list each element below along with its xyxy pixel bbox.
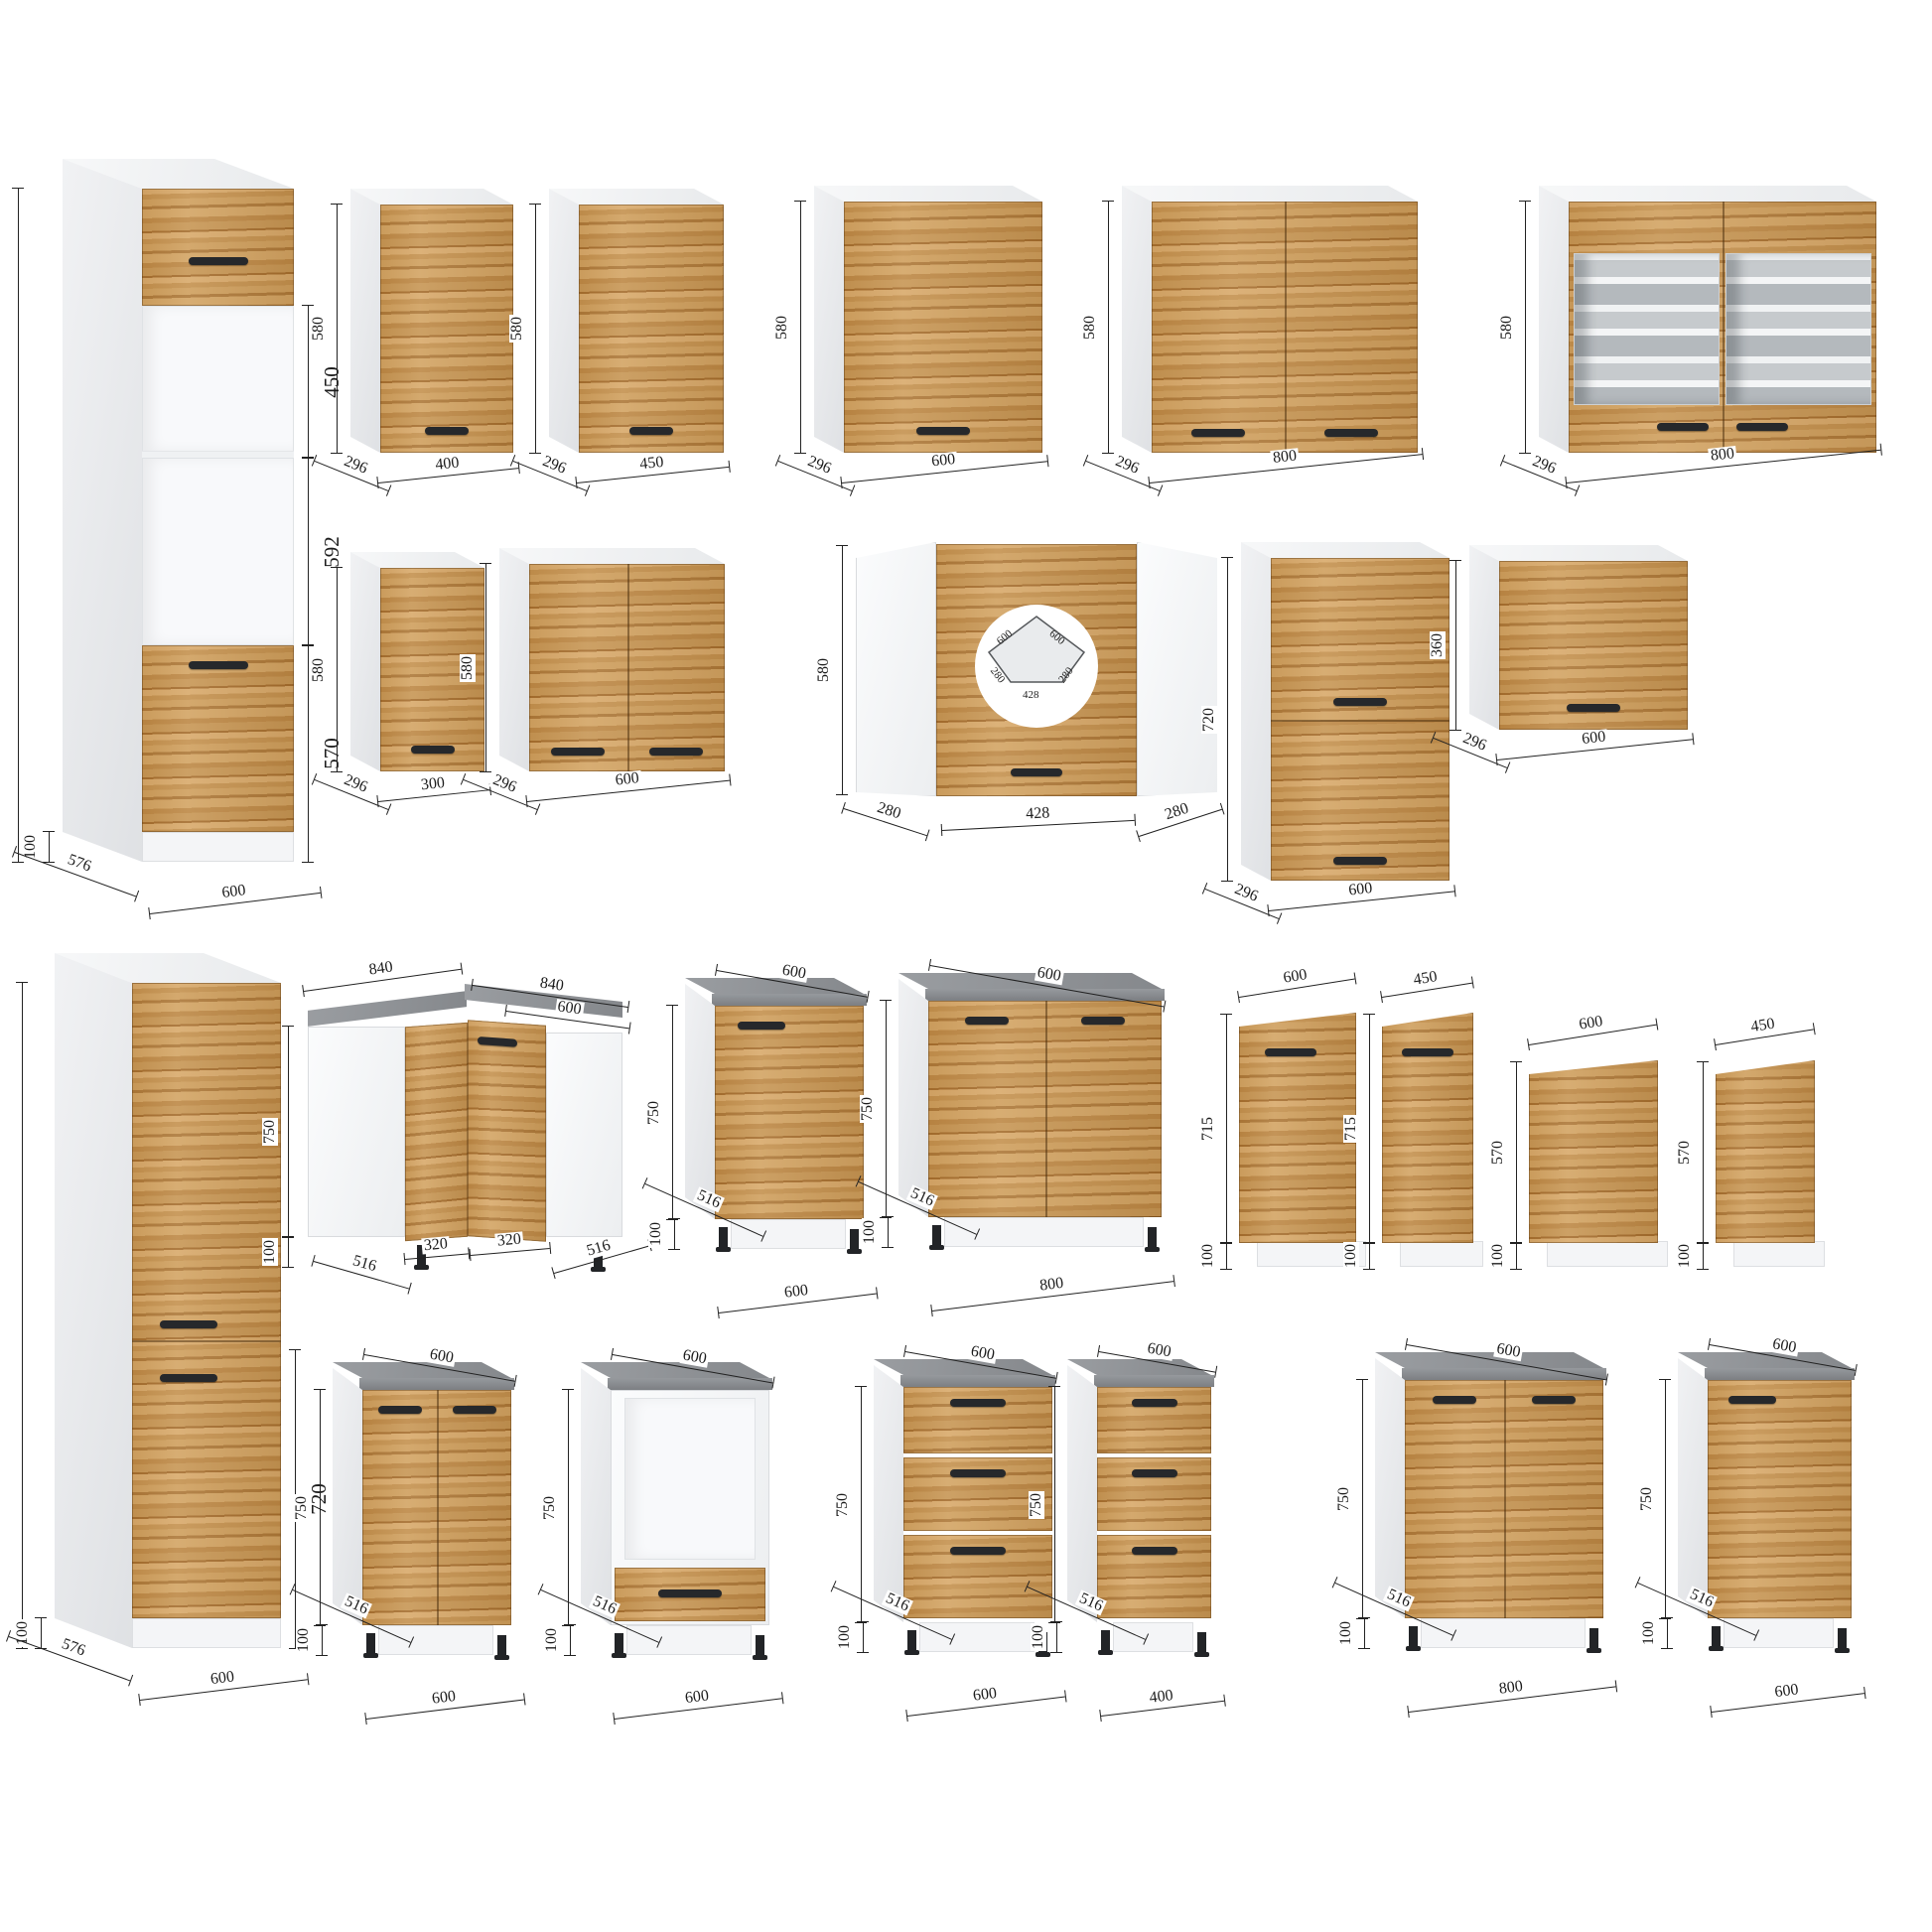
cabinet-side-face: [350, 189, 380, 453]
corner-door-left: [405, 1023, 468, 1241]
cabinet-leg: [932, 1225, 941, 1245]
door-handle: [189, 661, 248, 669]
door-handle: [1191, 429, 1245, 437]
corner-left-wing: [856, 542, 936, 796]
dim-height: 580: [842, 546, 843, 794]
dim-plinth: 100: [1369, 1243, 1370, 1269]
door-handle: [1728, 1396, 1776, 1404]
dim-width: 600: [1239, 979, 1355, 998]
door-handle: [629, 427, 673, 435]
door-split-line: [1285, 202, 1287, 453]
dim-label-width: 600: [970, 1686, 1000, 1705]
dim-height: 360: [1455, 561, 1456, 730]
panel-front: [1239, 1013, 1356, 1243]
dim-label-depth: 296: [340, 771, 371, 796]
cabinet-leg: [1409, 1626, 1418, 1646]
countertop-edge: [925, 989, 1165, 1001]
plinth-panel: [731, 1219, 846, 1249]
dim-label-width: 800: [1708, 446, 1737, 465]
dim-height: 715: [1226, 1015, 1227, 1243]
dim-height: 580: [337, 568, 338, 771]
door-handle: [1567, 704, 1620, 712]
dim-label-door_lower: 570: [321, 736, 342, 771]
cabinet-leg: [850, 1229, 859, 1249]
dim-label-width: 600: [1576, 1014, 1605, 1034]
dim-label-width: 600: [1580, 729, 1609, 748]
dim-label-height: 570: [1677, 1139, 1693, 1167]
plinth-panel: [1724, 1618, 1834, 1648]
dim-label-width: 600: [207, 1669, 237, 1688]
dim-label-height: 750: [1029, 1491, 1044, 1519]
cabinet-front: [928, 1001, 1162, 1217]
dim-total_height: 1940: [18, 189, 19, 862]
cabinet-top-face: [814, 186, 1042, 202]
cabinet-side-face: [685, 978, 715, 1219]
dim-label-top_width: 600: [1144, 1340, 1173, 1361]
oven-drawer-front: [615, 1568, 765, 1621]
dim-label-plinth: 100: [1343, 1242, 1359, 1270]
dim-label-left: 280: [873, 799, 904, 823]
countertop-edge: [1705, 1368, 1855, 1380]
door-handle: [478, 1036, 517, 1047]
dim-label-width: 300: [418, 775, 448, 794]
dim-label-height: 750: [860, 1095, 876, 1123]
dim-label-width: 400: [433, 455, 463, 474]
dim-label-height: 580: [460, 654, 476, 682]
door-handle: [378, 1406, 422, 1414]
dim-label-width: 600: [613, 770, 642, 789]
cabinet-top-face: [1122, 186, 1418, 202]
cabinet-front: [362, 1390, 511, 1625]
cabinet-top-face: [499, 548, 725, 564]
door-handle: [950, 1469, 1006, 1477]
dim-height: 750: [1665, 1380, 1666, 1618]
dim-label-height: 750: [1639, 1485, 1655, 1513]
cabinet-front: [715, 1006, 864, 1219]
dim-width: 600: [1529, 1025, 1657, 1045]
dim-label-plinth: 100: [1200, 1242, 1216, 1270]
dim-label-depth: 296: [803, 453, 835, 478]
door-handle: [1265, 1048, 1316, 1056]
cabinet-side-face: [1241, 542, 1271, 881]
door-split-line: [1723, 202, 1725, 453]
cabinet-top-face: [549, 189, 724, 205]
dim-plinth: 100: [1516, 1243, 1517, 1269]
dim-label-height: 715: [1343, 1115, 1359, 1143]
dim-height: 750: [886, 1001, 887, 1217]
cabinet-side-face: [581, 1362, 611, 1625]
oven-bottom-door: [142, 645, 294, 832]
dim-bottom_inner_left: 320: [405, 1253, 469, 1260]
dim-plinth: 100: [863, 1622, 864, 1652]
dim-height: 580: [535, 205, 536, 453]
dim-label-width: 800: [1496, 1679, 1526, 1698]
dim-plinth: 100: [322, 1625, 323, 1655]
dim-label-width: 800: [1270, 448, 1300, 467]
corner-right-panel: [546, 1033, 622, 1237]
cabinet-leg: [1589, 1628, 1598, 1648]
dim-total_height: 1940: [22, 983, 23, 1648]
door-handle: [160, 1320, 217, 1328]
dim-label-width: 400: [1147, 1688, 1176, 1707]
door-handle: [1132, 1399, 1177, 1407]
dim-label-plinth: 100: [837, 1623, 853, 1651]
dim-label-width: 600: [682, 1688, 712, 1707]
dim-width: 400: [378, 468, 518, 483]
dim-door_lower: 570: [308, 645, 309, 862]
door-handle: [1736, 423, 1788, 431]
dim-width: 600: [842, 461, 1047, 483]
dim-label-depth: 296: [1230, 881, 1262, 905]
door-split-line: [1045, 1001, 1047, 1217]
dim-label-depth: 296: [538, 453, 570, 478]
dim-center: 428: [942, 820, 1135, 831]
dim-label-width: 800: [1036, 1276, 1066, 1295]
plinth-panel: [1547, 1241, 1668, 1267]
countertop-edge: [712, 994, 867, 1006]
door-handle: [1132, 1469, 1177, 1477]
dim-label-depth: 296: [488, 771, 520, 796]
cabinet-side-face: [814, 186, 844, 453]
dim-label-height: 580: [774, 314, 790, 342]
corner-plan-inset: 600600280280428: [975, 605, 1098, 728]
dim-height: 750: [861, 1387, 862, 1622]
drawer-front: [903, 1387, 1052, 1453]
dim-label-plinth: 100: [862, 1218, 878, 1246]
plinth-panel: [919, 1622, 1035, 1652]
cabinet-side-face: [350, 552, 380, 771]
dim-label-height: 570: [1490, 1139, 1506, 1167]
dim-label-height: 580: [509, 315, 525, 343]
cabinet-front: [529, 564, 725, 771]
cabinet-front: [132, 983, 281, 1618]
door-handle: [950, 1547, 1006, 1555]
dim-width: 400: [1101, 1701, 1224, 1717]
dim-label-bottom_left: 516: [348, 1253, 379, 1276]
door-handle: [1333, 857, 1387, 865]
cabinet-front: [1499, 561, 1688, 730]
dim-label-depth: 296: [340, 453, 371, 478]
dim-label-height: 715: [1200, 1115, 1216, 1143]
dim-label-width: 600: [219, 883, 249, 901]
dim-label-top_left: 840: [366, 959, 396, 979]
cabinet-leg: [1838, 1628, 1847, 1648]
countertop-edge: [359, 1378, 514, 1390]
oven-cavity: [624, 1398, 756, 1560]
dim-width: 600: [1712, 1693, 1864, 1713]
drawer-front: [1097, 1535, 1211, 1618]
oven-top-drawer-front: [142, 189, 294, 306]
dim-label-depth: 576: [58, 1636, 89, 1661]
door-handle: [1011, 768, 1062, 776]
door-split-line: [1271, 720, 1449, 722]
dim-width: 300: [378, 789, 489, 802]
door-handle: [1324, 429, 1378, 437]
dim-plinth: 100: [1056, 1622, 1057, 1652]
cabinet-side-face: [874, 1359, 903, 1622]
cabinet-side-face: [549, 189, 579, 453]
dim-plinth: 100: [288, 1237, 289, 1267]
dim-label-width: 600: [1346, 881, 1376, 899]
dim-height: 720: [1227, 558, 1228, 881]
dim-plinth: 100: [674, 1219, 675, 1249]
door-split-line: [627, 564, 629, 771]
door-handle: [1657, 423, 1709, 431]
corner-right-wing: [1137, 542, 1218, 796]
cabinet-side-face: [1539, 186, 1569, 453]
door-handle: [1081, 1017, 1125, 1025]
countertop-top: [1375, 1352, 1603, 1368]
door-handle: [738, 1022, 785, 1030]
dim-height: 750: [568, 1390, 569, 1625]
cabinet-leg: [1101, 1630, 1110, 1650]
cabinet-front: [1708, 1380, 1852, 1618]
dim-width: 600: [1269, 891, 1454, 911]
dim-label-plinth: 100: [648, 1220, 664, 1248]
dim-label-height: 580: [816, 656, 832, 684]
dim-plinth: 100: [1703, 1243, 1704, 1269]
dim-label-width: 600: [781, 1283, 811, 1302]
glass-pane-right: [1725, 253, 1871, 405]
door-handle: [1433, 1396, 1476, 1404]
dim-label-plinth: 100: [1641, 1619, 1657, 1647]
door-split-line: [132, 1340, 281, 1342]
drawer-front: [1097, 1457, 1211, 1531]
dim-height: 750: [288, 1027, 289, 1237]
cabinet-front: [380, 205, 513, 453]
dim-width: 600: [907, 1697, 1065, 1717]
oven-housing-front: [611, 1390, 769, 1625]
plinth-panel: [1113, 1622, 1193, 1652]
cabinet-front: [1271, 558, 1449, 881]
dim-plinth: 100: [888, 1217, 889, 1247]
dim-height: 580: [1108, 202, 1109, 453]
cabinet-leg: [1712, 1626, 1721, 1646]
countertop-edge: [1094, 1375, 1214, 1387]
cabinet-front: [579, 205, 724, 453]
dim-niche_upper: 450: [308, 306, 309, 458]
cabinet-leg: [1197, 1632, 1206, 1652]
dim-label-height: 720: [1201, 706, 1217, 734]
dim-label-plinth: 100: [296, 1626, 312, 1654]
door-handle: [453, 1406, 496, 1414]
dim-top_left: 840: [304, 969, 462, 992]
cabinet-side-face: [63, 159, 142, 862]
cabinet-top-face: [1241, 542, 1449, 558]
cabinet-front: [1405, 1380, 1603, 1618]
countertop-top: [898, 973, 1162, 989]
dim-label-width: 600: [929, 452, 959, 471]
dim-label-plinth: 100: [544, 1626, 560, 1654]
dim-plinth: 100: [1667, 1618, 1668, 1648]
dim-label-height: 360: [1430, 631, 1446, 659]
dim-width: 600: [150, 893, 321, 914]
cabinet-front: [1152, 202, 1418, 453]
door-handle: [1132, 1547, 1177, 1555]
countertop-edge: [900, 1375, 1055, 1387]
dim-label-width: 600: [1280, 967, 1310, 987]
dim-height: 750: [1054, 1387, 1055, 1622]
door-handle: [1532, 1396, 1576, 1404]
cabinet-leg: [756, 1635, 764, 1655]
cabinet-side-face: [1067, 1359, 1097, 1622]
dim-height: 715: [1369, 1015, 1370, 1243]
dim-height: 580: [800, 202, 801, 453]
door-handle: [658, 1589, 722, 1597]
plinth-panel: [626, 1625, 752, 1655]
kitchen-cabinet-dimensions-diagram: 1940450592570100576600580296400580296450…: [0, 0, 1932, 1932]
dim-label-plinth: 100: [1677, 1242, 1693, 1270]
door-handle: [1402, 1048, 1453, 1056]
dim-label-total_height: 1940: [0, 1286, 2, 1345]
cabinet-side-face: [1375, 1352, 1405, 1618]
cabinet-side-face: [898, 973, 928, 1217]
drawer-front: [903, 1535, 1052, 1618]
dim-label-height: 750: [835, 1491, 851, 1519]
dim-bottom_inner_right: 320: [471, 1248, 550, 1256]
dim-label-width: 450: [1411, 969, 1441, 989]
plinth-panel: [1733, 1241, 1825, 1267]
dim-width: 450: [1382, 983, 1472, 998]
dim-plinth: 100: [1364, 1618, 1365, 1648]
dim-height: 580: [485, 564, 486, 771]
dim-width: 600: [366, 1700, 524, 1720]
dim-label-depth: 296: [1111, 453, 1143, 478]
dim-plinth: 100: [1226, 1243, 1227, 1269]
dim-label-height: 580: [311, 315, 327, 343]
corner-door-right: [468, 1020, 546, 1242]
dim-label-height: 750: [646, 1099, 662, 1127]
plan-label-plan_bottom_center: 428: [1023, 690, 1039, 701]
dim-depth: 576: [9, 1636, 131, 1681]
countertop-edge: [608, 1378, 772, 1390]
corner-left-panel: [308, 1027, 405, 1237]
dim-label-height: 750: [542, 1494, 558, 1522]
appliance-niche-lower: [142, 458, 294, 645]
door-handle: [189, 257, 248, 265]
dim-label-plinth: 100: [1031, 1623, 1046, 1651]
dim-niche_middle: 592: [308, 458, 309, 645]
dim-plinth: 100: [41, 1618, 42, 1648]
dim-label-bottom_right: 516: [583, 1237, 614, 1260]
dim-label-plinth: 100: [1490, 1242, 1506, 1270]
dim-label-top_depth: 600: [554, 999, 584, 1019]
dim-bottom_left: 516: [314, 1261, 409, 1290]
dim-height: 750: [1362, 1380, 1363, 1618]
dim-plinth: 100: [49, 832, 50, 862]
dim-width: 600: [527, 780, 730, 802]
dim-width: 800: [1567, 450, 1880, 483]
dim-height: 580: [337, 205, 338, 453]
plinth-panel: [132, 1618, 281, 1648]
dim-width: 600: [1497, 739, 1693, 760]
dim-width: 450: [1716, 1029, 1814, 1045]
dim-width: 600: [140, 1679, 308, 1701]
plinth-panel: [1421, 1618, 1586, 1648]
dim-label-height: 750: [294, 1494, 310, 1522]
cabinet-leg: [1148, 1227, 1157, 1247]
cabinet-side-face: [499, 548, 529, 771]
dim-label-width: 600: [429, 1689, 459, 1708]
dim-height: 570: [1703, 1062, 1704, 1243]
dim-width: 600: [615, 1698, 782, 1720]
dim-height: 750: [672, 1006, 673, 1219]
door-handle: [649, 748, 703, 756]
dim-label-height: 580: [1499, 314, 1515, 342]
dim-label-niche_upper: 450: [321, 364, 342, 400]
dim-label-center: 428: [1024, 805, 1052, 822]
panel-front: [1529, 1060, 1658, 1243]
dim-label-right: 280: [1162, 800, 1193, 824]
countertop-left: [308, 991, 467, 1027]
dim-width: 800: [1150, 454, 1423, 483]
door-handle: [950, 1399, 1006, 1407]
cabinet-side-face: [333, 1362, 362, 1625]
dim-label-plinth: 100: [262, 1238, 278, 1266]
dim-plinth: 100: [570, 1625, 571, 1655]
dim-label-depth: 296: [1528, 453, 1560, 478]
cabinet-top-face: [1469, 545, 1688, 561]
door-handle: [1333, 698, 1387, 706]
dim-width: 600: [719, 1294, 877, 1313]
dim-left: 280: [844, 808, 927, 836]
plinth-panel: [142, 832, 294, 862]
dim-width: 800: [932, 1281, 1173, 1311]
panel-front: [1382, 1013, 1473, 1243]
dim-label-plinth: 100: [1338, 1619, 1354, 1647]
dim-label-height: 580: [1082, 314, 1098, 342]
dim-label-door_lower: 720: [308, 1481, 329, 1517]
dim-depth: 576: [15, 852, 137, 897]
cabinet-side-face: [1678, 1352, 1708, 1618]
door-handle: [160, 1374, 217, 1382]
cabinet-leg: [719, 1227, 728, 1247]
cabinet-side-face: [55, 953, 132, 1648]
cabinet-front: [844, 202, 1042, 453]
cabinet-leg: [366, 1633, 375, 1653]
dim-label-depth: 576: [64, 852, 95, 877]
dim-height: 580: [1525, 202, 1526, 453]
door-handle: [425, 427, 469, 435]
door-handle: [965, 1017, 1009, 1025]
glass-pane-left: [1574, 253, 1720, 405]
dim-height: 570: [1516, 1062, 1517, 1243]
door-handle: [916, 427, 970, 435]
drawer-front: [1097, 1387, 1211, 1453]
cabinet-leg: [907, 1630, 916, 1650]
door-handle: [411, 746, 455, 754]
door-split-line: [437, 1390, 439, 1625]
dim-label-bottom_inner_left: 320: [421, 1236, 450, 1254]
cabinet-top-face: [1539, 186, 1876, 202]
dim-right: 280: [1139, 809, 1222, 837]
dim-width: 800: [1409, 1686, 1616, 1713]
cabinet-side-face: [1122, 186, 1152, 453]
appliance-niche-upper: [142, 306, 294, 452]
plinth-panel: [1400, 1241, 1483, 1267]
dim-label-height: 750: [262, 1118, 278, 1146]
cabinet-leg: [497, 1635, 506, 1655]
door-handle: [551, 748, 605, 756]
dim-label-width: 450: [637, 455, 667, 474]
dim-label-niche_middle: 592: [321, 534, 342, 570]
dim-label-height: 750: [1336, 1485, 1352, 1513]
dim-label-bottom_inner_right: 320: [494, 1231, 523, 1249]
dim-label-depth: 296: [1458, 730, 1490, 755]
corner-plan-drawing: [975, 605, 1098, 728]
dim-width: 450: [577, 467, 729, 483]
cabinet-front: [1569, 202, 1876, 453]
